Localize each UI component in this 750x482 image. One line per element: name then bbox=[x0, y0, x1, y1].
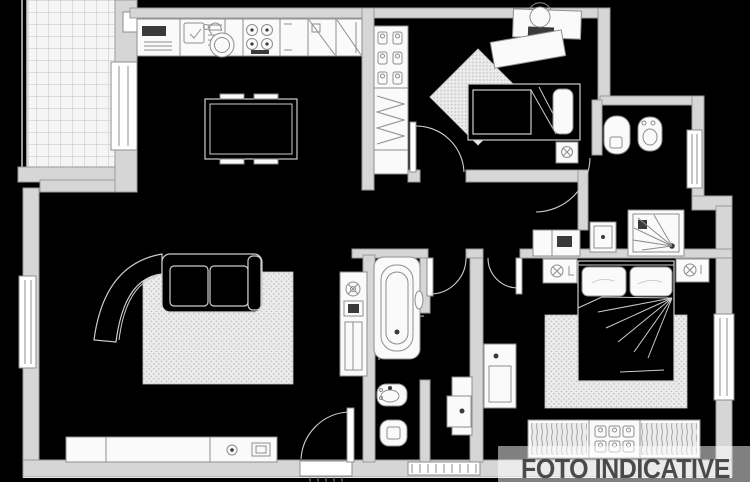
sofa-cushion bbox=[210, 266, 248, 306]
bedroom2-door-leaf bbox=[410, 122, 416, 172]
shower-icon bbox=[628, 210, 684, 256]
wall-hall-east-stub bbox=[578, 170, 588, 230]
wardrobe-column bbox=[374, 26, 408, 174]
wall-ne-vertical bbox=[598, 8, 610, 100]
terrace-tiled-floor bbox=[28, 0, 116, 167]
master-door-leaf bbox=[516, 258, 522, 294]
sofa-armrest bbox=[248, 256, 261, 310]
wall-kitchen-bedroom2 bbox=[362, 8, 374, 190]
chair-mark bbox=[220, 94, 244, 99]
single-bed bbox=[468, 84, 580, 140]
toilet-icon bbox=[604, 116, 630, 154]
kitchen-drawer bbox=[142, 26, 166, 36]
shelf-cabinet bbox=[340, 272, 367, 376]
entrance-door-leaf bbox=[347, 408, 354, 462]
tv-icon bbox=[252, 443, 270, 456]
watermark-text: FOTO INDICATIVE bbox=[521, 453, 730, 482]
dining-table bbox=[205, 94, 297, 164]
wall-bathroom2-left bbox=[592, 100, 602, 155]
entrance-opening bbox=[300, 461, 352, 476]
nightstand-left bbox=[543, 259, 577, 283]
living-room-window bbox=[19, 276, 36, 368]
bidet-icon bbox=[638, 117, 662, 151]
bathroom2-window bbox=[687, 130, 702, 188]
chair-mark bbox=[254, 159, 278, 164]
toilet-icon bbox=[380, 420, 407, 446]
shower-basin-icon bbox=[590, 222, 616, 252]
washbasin-icon bbox=[377, 384, 407, 406]
master-bedroom-window bbox=[714, 314, 734, 400]
corridor-door-leaf bbox=[427, 258, 433, 296]
terrace bbox=[18, 0, 139, 192]
wall-bathroom1-right-lower bbox=[420, 380, 430, 462]
console-table bbox=[533, 230, 580, 256]
sofa-cushion bbox=[170, 266, 208, 306]
pillow bbox=[553, 89, 573, 134]
wall-ne-top bbox=[600, 96, 702, 105]
desk-chair bbox=[530, 7, 550, 27]
double-bed bbox=[578, 261, 674, 381]
watermark: FOTO INDICATIVE bbox=[498, 446, 750, 482]
bathtub-icon bbox=[374, 257, 423, 359]
sideboard bbox=[66, 437, 277, 462]
chair-mark bbox=[254, 94, 278, 99]
floor-plan: FOTO INDICATIVE bbox=[0, 0, 750, 482]
pillow-left bbox=[582, 267, 626, 296]
pillow-right bbox=[630, 267, 672, 296]
floor-plan-screenshot: FOTO INDICATIVE bbox=[0, 0, 750, 482]
chair-mark bbox=[220, 159, 244, 164]
wall-corridor-top bbox=[466, 249, 483, 258]
nightstand-right bbox=[676, 259, 709, 282]
sink-icon bbox=[184, 23, 204, 43]
dresser bbox=[484, 344, 516, 408]
nightstand bbox=[556, 142, 578, 163]
terrace-french-door bbox=[111, 62, 137, 150]
wall-bedroom2-bottom bbox=[466, 170, 580, 182]
